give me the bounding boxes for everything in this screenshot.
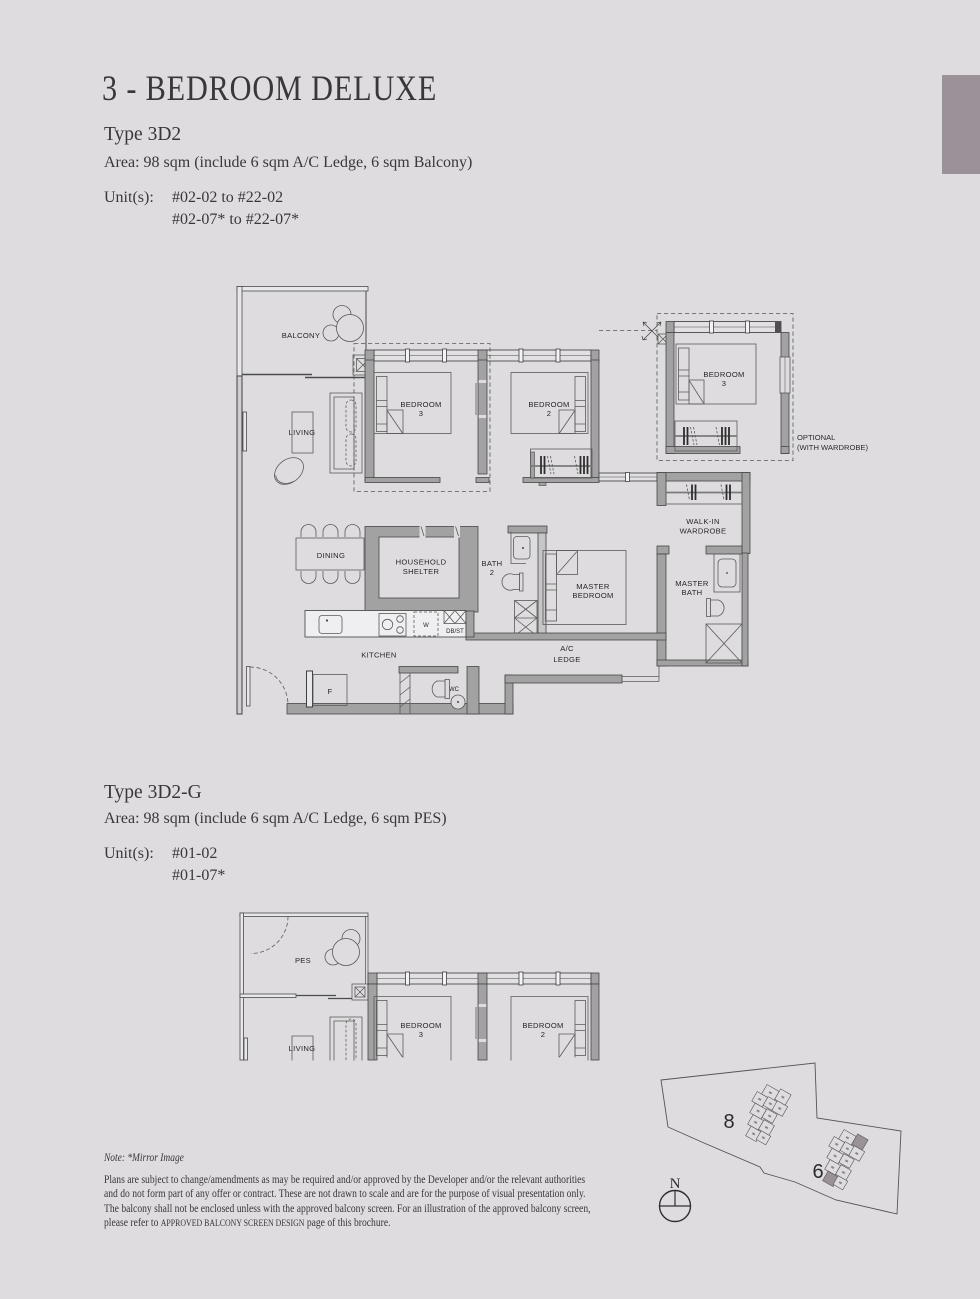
svg-text:BATH: BATH: [482, 559, 503, 568]
svg-text:A/C: A/C: [560, 644, 574, 653]
svg-text:BEDROOM: BEDROOM: [400, 400, 441, 409]
svg-text:LEDGE: LEDGE: [553, 655, 580, 664]
svg-text:WC: WC: [449, 687, 460, 693]
svg-text:8: 8: [723, 1111, 734, 1133]
svg-text:LIVING: LIVING: [289, 1044, 316, 1053]
svg-text:6: 6: [812, 1161, 823, 1183]
svg-text:DINING: DINING: [317, 551, 345, 560]
svg-text:MASTER: MASTER: [675, 579, 709, 588]
svg-text:BEDROOM: BEDROOM: [528, 400, 569, 409]
svg-text:3: 3: [419, 409, 424, 418]
svg-text:F: F: [328, 687, 333, 696]
svg-text:2: 2: [490, 568, 495, 577]
svg-text:3: 3: [722, 379, 727, 388]
svg-text:(WITH WARDROBE): (WITH WARDROBE): [797, 443, 868, 452]
svg-text:2: 2: [541, 1030, 546, 1039]
svg-text:HOUSEHOLD: HOUSEHOLD: [396, 558, 447, 567]
svg-text:BEDROOM: BEDROOM: [703, 370, 744, 379]
svg-text:OPTIONAL: OPTIONAL: [797, 433, 835, 442]
svg-text:N: N: [670, 1176, 681, 1192]
svg-text:BEDROOM: BEDROOM: [572, 591, 613, 600]
svg-text:WARDROBE: WARDROBE: [680, 527, 727, 536]
svg-text:DB/ST: DB/ST: [446, 629, 464, 635]
svg-text:BATH: BATH: [682, 588, 703, 597]
svg-text:BEDROOM: BEDROOM: [522, 1021, 563, 1030]
svg-text:KITCHEN: KITCHEN: [361, 651, 396, 660]
svg-text:SHELTER: SHELTER: [403, 567, 440, 576]
svg-text:3: 3: [419, 1030, 424, 1039]
svg-text:2: 2: [547, 409, 552, 418]
svg-text:W: W: [423, 623, 429, 629]
svg-text:WALK-IN: WALK-IN: [686, 517, 719, 526]
svg-text:BALCONY: BALCONY: [282, 331, 320, 340]
svg-text:MASTER: MASTER: [576, 582, 610, 591]
svg-text:PES: PES: [295, 956, 311, 965]
svg-text:LIVING: LIVING: [289, 428, 316, 437]
svg-text:BEDROOM: BEDROOM: [400, 1021, 441, 1030]
